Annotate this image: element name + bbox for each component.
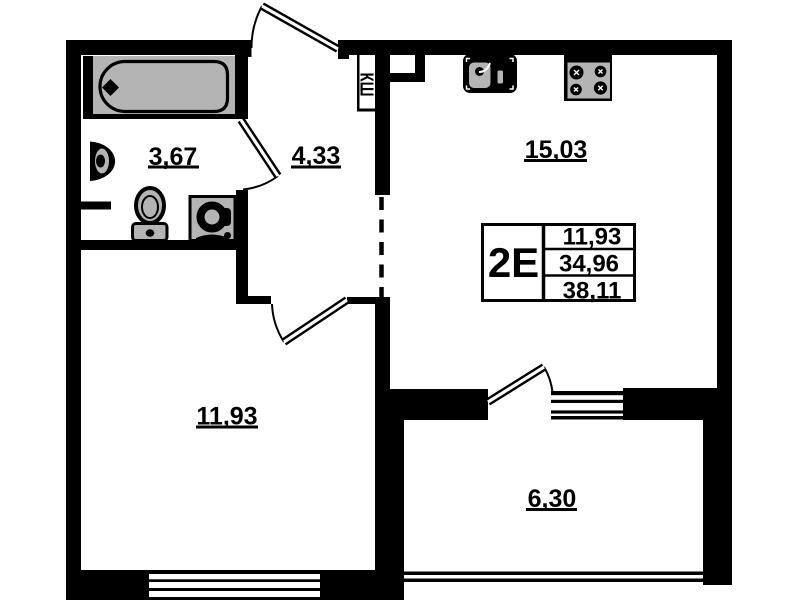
svg-text:38,11: 38,11 — [563, 278, 622, 305]
svg-text:11,93: 11,93 — [563, 224, 622, 251]
svg-text:2Е: 2Е — [488, 239, 539, 286]
svg-text:34,96: 34,96 — [559, 251, 619, 278]
svg-text:КШ: КШ — [357, 73, 377, 97]
